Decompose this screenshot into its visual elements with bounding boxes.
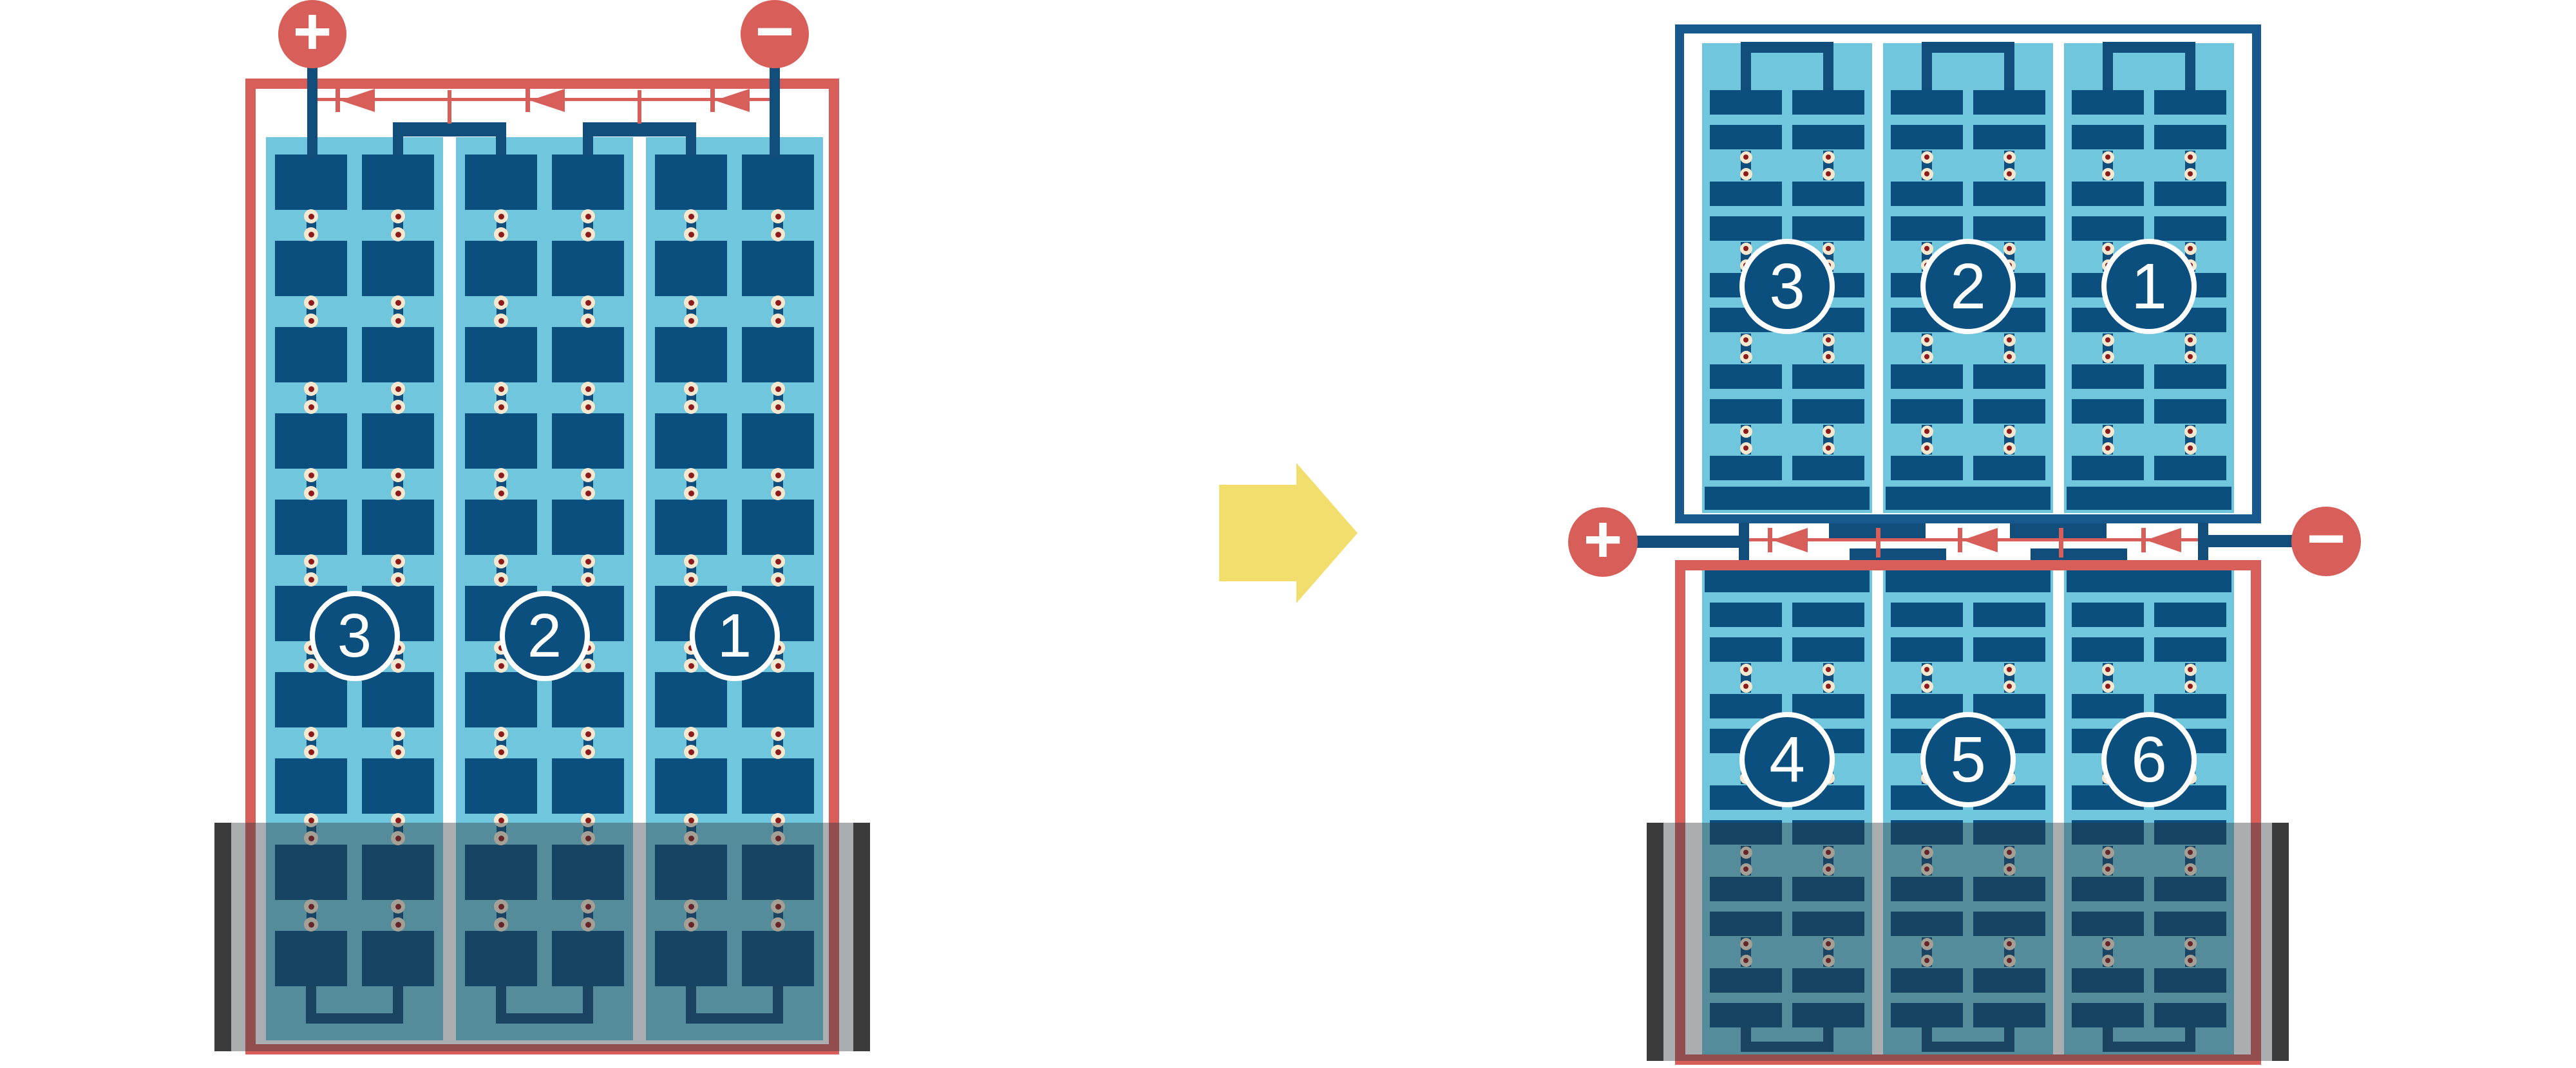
solder-dot-core	[308, 559, 314, 565]
solder-dot	[304, 572, 318, 586]
solder-dot	[581, 209, 595, 223]
solder-dot-core	[2007, 667, 2012, 672]
positive-terminal-icon-glyph: +	[293, 0, 332, 65]
solder-dot-core	[2105, 445, 2110, 451]
negative-terminal-icon-glyph: −	[2307, 505, 2346, 572]
right-arrow-head	[1296, 463, 1358, 603]
solder-dot-core	[395, 232, 401, 238]
solar-cell	[552, 413, 624, 469]
bypass-diode-2-triangle	[530, 89, 565, 112]
solder-dot-core	[2007, 684, 2012, 689]
solder-dot-core	[688, 404, 694, 410]
solder-dot	[494, 209, 508, 223]
solder-dot	[494, 400, 508, 414]
solder-dot-core	[1924, 684, 1929, 689]
solder-dot	[391, 486, 405, 500]
solar-cell	[1891, 182, 1963, 206]
solder-dot	[771, 554, 785, 568]
solder-dot	[771, 486, 785, 500]
bypass-diode-2-cathode-bar	[526, 89, 530, 112]
solder-dot-core	[498, 214, 504, 220]
solder-dot-core	[1826, 337, 1831, 342]
solder-dot	[771, 227, 785, 241]
solder-dot	[1823, 351, 1835, 363]
shade-end-cap	[2272, 823, 2289, 1061]
solder-dot	[771, 314, 785, 328]
solder-dot-core	[308, 577, 314, 583]
string-number-label: 4	[1769, 727, 1805, 792]
solder-dot	[2003, 664, 2016, 676]
solder-dot-core	[585, 214, 591, 220]
solder-dot-core	[395, 749, 401, 755]
solar-cell	[1792, 399, 1864, 424]
top-jumper-leg	[2004, 53, 2014, 90]
bus-bar	[1886, 487, 2050, 510]
solder-dot-core	[395, 577, 401, 583]
solar-cell	[1710, 125, 1782, 149]
solder-dot	[581, 572, 595, 586]
solar-cell	[275, 327, 347, 382]
solder-dot-core	[308, 232, 314, 238]
positive-terminal-icon: +	[1568, 507, 1638, 577]
string-bridge-leg	[583, 136, 593, 156]
string-number-badge: 5	[1920, 712, 2016, 807]
top-jumper-bar	[1922, 42, 2014, 53]
top-jumper-leg	[2185, 53, 2195, 90]
solder-dot	[684, 468, 698, 482]
solar-cell	[742, 672, 814, 727]
solar-cell	[742, 413, 814, 469]
solar-cell	[742, 500, 814, 555]
bypass-diode-2-cathode-bar	[1958, 528, 1962, 552]
solar-cell	[552, 500, 624, 555]
solar-cell	[275, 413, 347, 469]
solder-dot-core	[2105, 429, 2110, 434]
string-number-badge: 3	[1739, 239, 1835, 334]
solar-cell	[552, 155, 624, 210]
solder-dot-core	[585, 559, 591, 565]
solder-dot	[2102, 426, 2114, 438]
solar-cell	[275, 155, 347, 210]
solder-dot	[2102, 442, 2114, 454]
string-number-badge: 2	[500, 591, 590, 681]
solder-dot-core	[2105, 354, 2110, 359]
solar-cell	[1973, 364, 2045, 389]
solder-dot	[1823, 151, 1835, 164]
solder-dot	[1740, 351, 1752, 363]
solar-cell	[362, 500, 434, 555]
solder-dot	[2184, 426, 2197, 438]
solder-dot-core	[775, 559, 781, 565]
solder-dot-core	[1826, 155, 1831, 160]
solder-dot-core	[395, 300, 401, 306]
shade-end-cap	[853, 823, 870, 1051]
solder-dot	[684, 227, 698, 241]
solder-dot	[1740, 243, 1752, 255]
solder-dot-core	[1743, 155, 1748, 160]
solder-dot-core	[308, 404, 314, 410]
solder-dot-core	[498, 731, 504, 737]
solder-dot	[581, 400, 595, 414]
solder-dot-core	[308, 663, 314, 669]
solar-cell	[275, 758, 347, 814]
solder-dot	[1740, 442, 1752, 454]
solar-cell	[742, 327, 814, 382]
solder-dot-core	[2188, 171, 2193, 176]
solder-dot-core	[775, 749, 781, 755]
solder-dot	[304, 468, 318, 482]
solder-dot	[494, 745, 508, 759]
solder-dot-core	[688, 491, 694, 496]
solar-cell	[655, 672, 727, 727]
solar-cell	[742, 758, 814, 814]
solder-dot-core	[688, 318, 694, 324]
top-jumper-bar	[2103, 42, 2195, 53]
solder-dot	[2184, 442, 2197, 454]
solder-dot-core	[1924, 429, 1929, 434]
solar-cell	[742, 155, 814, 210]
top-jumper-leg	[1823, 53, 1833, 90]
solder-dot-core	[2007, 429, 2012, 434]
solder-dot	[2102, 664, 2114, 676]
solder-dot	[581, 382, 595, 396]
string-bridge-leg	[393, 136, 403, 156]
solder-dot	[684, 400, 698, 414]
solar-cell	[2072, 182, 2144, 206]
solder-dot	[1921, 151, 1933, 164]
solar-cell	[2154, 182, 2226, 206]
negative-terminal-icon: −	[741, 0, 809, 68]
solder-dot-core	[1743, 684, 1748, 689]
string-number-badge: 1	[2101, 239, 2197, 334]
solar-cell	[2072, 364, 2144, 389]
solar-cell	[1710, 216, 1782, 241]
solar-cell	[2154, 216, 2226, 241]
solar-cell	[1973, 216, 2045, 241]
solder-dot	[1921, 442, 1933, 454]
solder-dot-core	[498, 473, 504, 478]
solder-dot-core	[585, 473, 591, 478]
solder-dot-core	[2105, 155, 2110, 160]
solder-dot	[771, 295, 785, 310]
solder-dot	[581, 468, 595, 482]
solder-dot	[494, 382, 508, 396]
diode-rail-tap	[1876, 528, 1880, 557]
bypass-diode-3-cathode-bar	[710, 89, 715, 112]
solar-cell	[1710, 90, 1782, 115]
shade-overlay	[231, 823, 853, 1051]
solder-dot-core	[775, 300, 781, 306]
solder-dot-core	[308, 386, 314, 392]
solar-cell	[2072, 90, 2144, 115]
solar-cell	[362, 672, 434, 727]
solder-dot-core	[688, 214, 694, 220]
solder-dot	[494, 295, 508, 310]
solder-dot	[771, 727, 785, 741]
solder-dot	[1921, 168, 1933, 180]
solder-dot	[1823, 243, 1835, 255]
solder-dot-core	[585, 232, 591, 238]
solder-dot	[391, 227, 405, 241]
solder-dot-core	[688, 300, 694, 306]
string-number-label: 2	[1950, 254, 1986, 319]
solder-dot	[391, 295, 405, 310]
solar-cell	[2154, 90, 2226, 115]
solder-dot-core	[1826, 684, 1831, 689]
solar-cell	[552, 241, 624, 296]
solar-cell	[1973, 399, 2045, 424]
solar-cell	[1792, 182, 1864, 206]
string-number-badge: 2	[1920, 239, 2016, 334]
solder-dot-core	[585, 318, 591, 324]
diode-rail-tap	[638, 90, 641, 124]
solder-dot-core	[1743, 445, 1748, 451]
solar-cell	[275, 500, 347, 555]
solder-dot	[2184, 243, 2197, 255]
bypass-diode-1-cathode-bar	[1768, 528, 1772, 552]
solder-dot-core	[2007, 246, 2012, 251]
solder-dot-core	[775, 232, 781, 238]
solder-dot	[391, 314, 405, 328]
solder-dot	[494, 659, 508, 673]
solder-dot	[2102, 680, 2114, 693]
solar-cell	[1792, 637, 1864, 662]
solder-dot-core	[395, 473, 401, 478]
solder-dot	[2102, 351, 2114, 363]
solder-dot	[391, 209, 405, 223]
solder-dot-core	[2188, 445, 2193, 451]
solder-dot-core	[688, 559, 694, 565]
solar-cell	[552, 327, 624, 382]
solder-dot	[2003, 151, 2016, 164]
solder-dot	[684, 659, 698, 673]
solder-dot	[2184, 680, 2197, 693]
solder-dot	[304, 400, 318, 414]
solder-dot	[1823, 442, 1835, 454]
solder-dot-core	[2105, 171, 2110, 176]
solar-cell	[465, 241, 537, 296]
solar-cell	[655, 241, 727, 296]
string-number-label: 5	[1950, 727, 1986, 792]
solder-dot	[391, 727, 405, 741]
solder-dot	[494, 314, 508, 328]
solder-dot	[391, 572, 405, 586]
solder-dot	[304, 554, 318, 568]
solder-dot-core	[688, 232, 694, 238]
solder-dot	[581, 659, 595, 673]
solder-dot-core	[775, 731, 781, 737]
solder-dot	[684, 745, 698, 759]
solder-dot	[684, 554, 698, 568]
solder-dot-core	[498, 404, 504, 410]
string-number-label: 3	[1769, 254, 1805, 319]
string-number-badge: 6	[2101, 712, 2197, 807]
solder-dot-core	[1826, 354, 1831, 359]
diode-rail-tap	[2059, 528, 2063, 557]
negative-terminal-icon: −	[2291, 507, 2361, 576]
solder-dot-core	[498, 577, 504, 583]
solder-dot	[684, 382, 698, 396]
bypass-diode-3-triangle	[2146, 528, 2181, 552]
bus-bar	[1705, 570, 1870, 592]
solder-dot-core	[775, 404, 781, 410]
solar-cell	[655, 155, 727, 210]
solar-cell	[2072, 216, 2144, 241]
solar-cell	[1973, 637, 2045, 662]
solar-cell	[1891, 603, 1963, 627]
solar-cell	[1891, 90, 1963, 115]
solder-dot-core	[395, 214, 401, 220]
solar-cell	[465, 327, 537, 382]
solar-cell	[1792, 90, 1864, 115]
string-number-label: 6	[2131, 727, 2167, 792]
solder-dot	[1921, 680, 1933, 693]
solder-dot	[1740, 334, 1752, 346]
solar-cell	[1891, 216, 1963, 241]
solder-dot-core	[1743, 354, 1748, 359]
solder-dot	[1740, 168, 1752, 180]
solar-cell	[465, 758, 537, 814]
solder-dot	[2184, 664, 2197, 676]
solder-dot-core	[498, 559, 504, 565]
solder-dot	[304, 295, 318, 310]
solar-cell	[2154, 125, 2226, 149]
right-arrow-body	[1219, 485, 1297, 581]
solder-dot	[1921, 664, 1933, 676]
solar-cell	[1891, 637, 1963, 662]
negative-lead	[2208, 535, 2293, 547]
solder-dot-core	[1924, 155, 1929, 160]
solder-dot	[1823, 334, 1835, 346]
solder-dot-core	[585, 300, 591, 306]
string-number-label: 2	[527, 605, 562, 667]
solder-dot-core	[1924, 171, 1929, 176]
solder-dot-core	[1743, 429, 1748, 434]
solder-dot-core	[775, 663, 781, 669]
solder-dot-core	[308, 749, 314, 755]
solder-dot	[2003, 243, 2016, 255]
bypass-diode-1-cathode-bar	[336, 89, 340, 112]
solder-dot-core	[2105, 246, 2110, 251]
solder-dot-core	[2007, 155, 2012, 160]
solder-dot	[2003, 334, 2016, 346]
solder-dot-core	[308, 318, 314, 324]
solder-dot-core	[395, 318, 401, 324]
bus-bar	[2067, 487, 2231, 510]
solder-dot	[494, 554, 508, 568]
solder-dot	[494, 468, 508, 482]
solder-dot	[1823, 426, 1835, 438]
solder-dot	[304, 745, 318, 759]
solder-dot	[304, 659, 318, 673]
shade-end-cap	[214, 823, 231, 1051]
solder-dot	[581, 314, 595, 328]
string-bridge-bar	[393, 122, 506, 136]
solder-dot-core	[2188, 337, 2193, 342]
top-jumper-bar	[1741, 42, 1833, 53]
solder-dot-core	[2188, 354, 2193, 359]
solder-dot-core	[688, 663, 694, 669]
junction-tab-lower	[2031, 548, 2127, 560]
solder-dot	[684, 572, 698, 586]
solder-dot	[391, 382, 405, 396]
solder-dot-core	[585, 663, 591, 669]
bypass-diode-1-triangle	[340, 89, 375, 112]
solder-dot-core	[1924, 667, 1929, 672]
string-bridge-bar	[583, 122, 696, 136]
junction-riser-right	[2198, 523, 2208, 560]
solar-cell	[552, 672, 624, 727]
string-number-label: 3	[337, 605, 372, 667]
solder-dot-core	[395, 559, 401, 565]
solar-cell	[655, 500, 727, 555]
solar-cell	[362, 327, 434, 382]
solder-dot	[391, 659, 405, 673]
solder-dot-core	[1924, 246, 1929, 251]
solder-dot-core	[688, 731, 694, 737]
solar-cell	[362, 413, 434, 469]
solar-cell	[1710, 182, 1782, 206]
negative-lead	[770, 63, 780, 158]
solder-dot	[2102, 151, 2114, 164]
solder-dot-core	[2105, 667, 2110, 672]
solar-cell	[552, 758, 624, 814]
solder-dot-core	[395, 731, 401, 737]
solder-dot-core	[498, 318, 504, 324]
string-number-badge: 3	[310, 591, 400, 681]
solar-cell	[1973, 90, 2045, 115]
solar-cell	[1710, 364, 1782, 389]
string-number-badge: 4	[1739, 712, 1835, 807]
bypass-diode-3-triangle	[715, 89, 750, 112]
solar-cell	[2072, 603, 2144, 627]
top-jumper-leg	[2103, 53, 2113, 90]
solar-cell	[362, 241, 434, 296]
solder-dot-core	[498, 663, 504, 669]
solder-dot	[581, 554, 595, 568]
solder-dot-core	[775, 386, 781, 392]
string-bridge-leg	[496, 136, 506, 156]
solder-dot-core	[308, 214, 314, 220]
solder-dot	[304, 486, 318, 500]
solder-dot	[771, 745, 785, 759]
solar-cell	[2072, 125, 2144, 149]
solar-cell	[2072, 456, 2144, 480]
solder-dot-core	[2007, 354, 2012, 359]
solar-cell	[362, 155, 434, 210]
solder-dot-core	[1924, 445, 1929, 451]
solder-dot-core	[688, 473, 694, 478]
diode-rail-tap	[448, 90, 451, 124]
solder-dot-core	[1924, 354, 1929, 359]
solder-dot-core	[1743, 667, 1748, 672]
bus-bar	[2067, 570, 2231, 592]
solar-cell	[362, 758, 434, 814]
solar-cell	[1710, 456, 1782, 480]
solar-cell	[2154, 637, 2226, 662]
bus-bar	[1705, 487, 1870, 510]
string-number-label: 1	[717, 605, 752, 667]
solar-cell	[1891, 456, 1963, 480]
solder-dot	[2003, 442, 2016, 454]
junction-tab-lower	[1850, 548, 1946, 560]
solder-dot-core	[498, 491, 504, 496]
solar-cell	[275, 672, 347, 727]
solder-dot	[304, 727, 318, 741]
solder-dot	[1823, 168, 1835, 180]
solar-cell	[1973, 603, 2045, 627]
solar-cell	[1792, 216, 1864, 241]
